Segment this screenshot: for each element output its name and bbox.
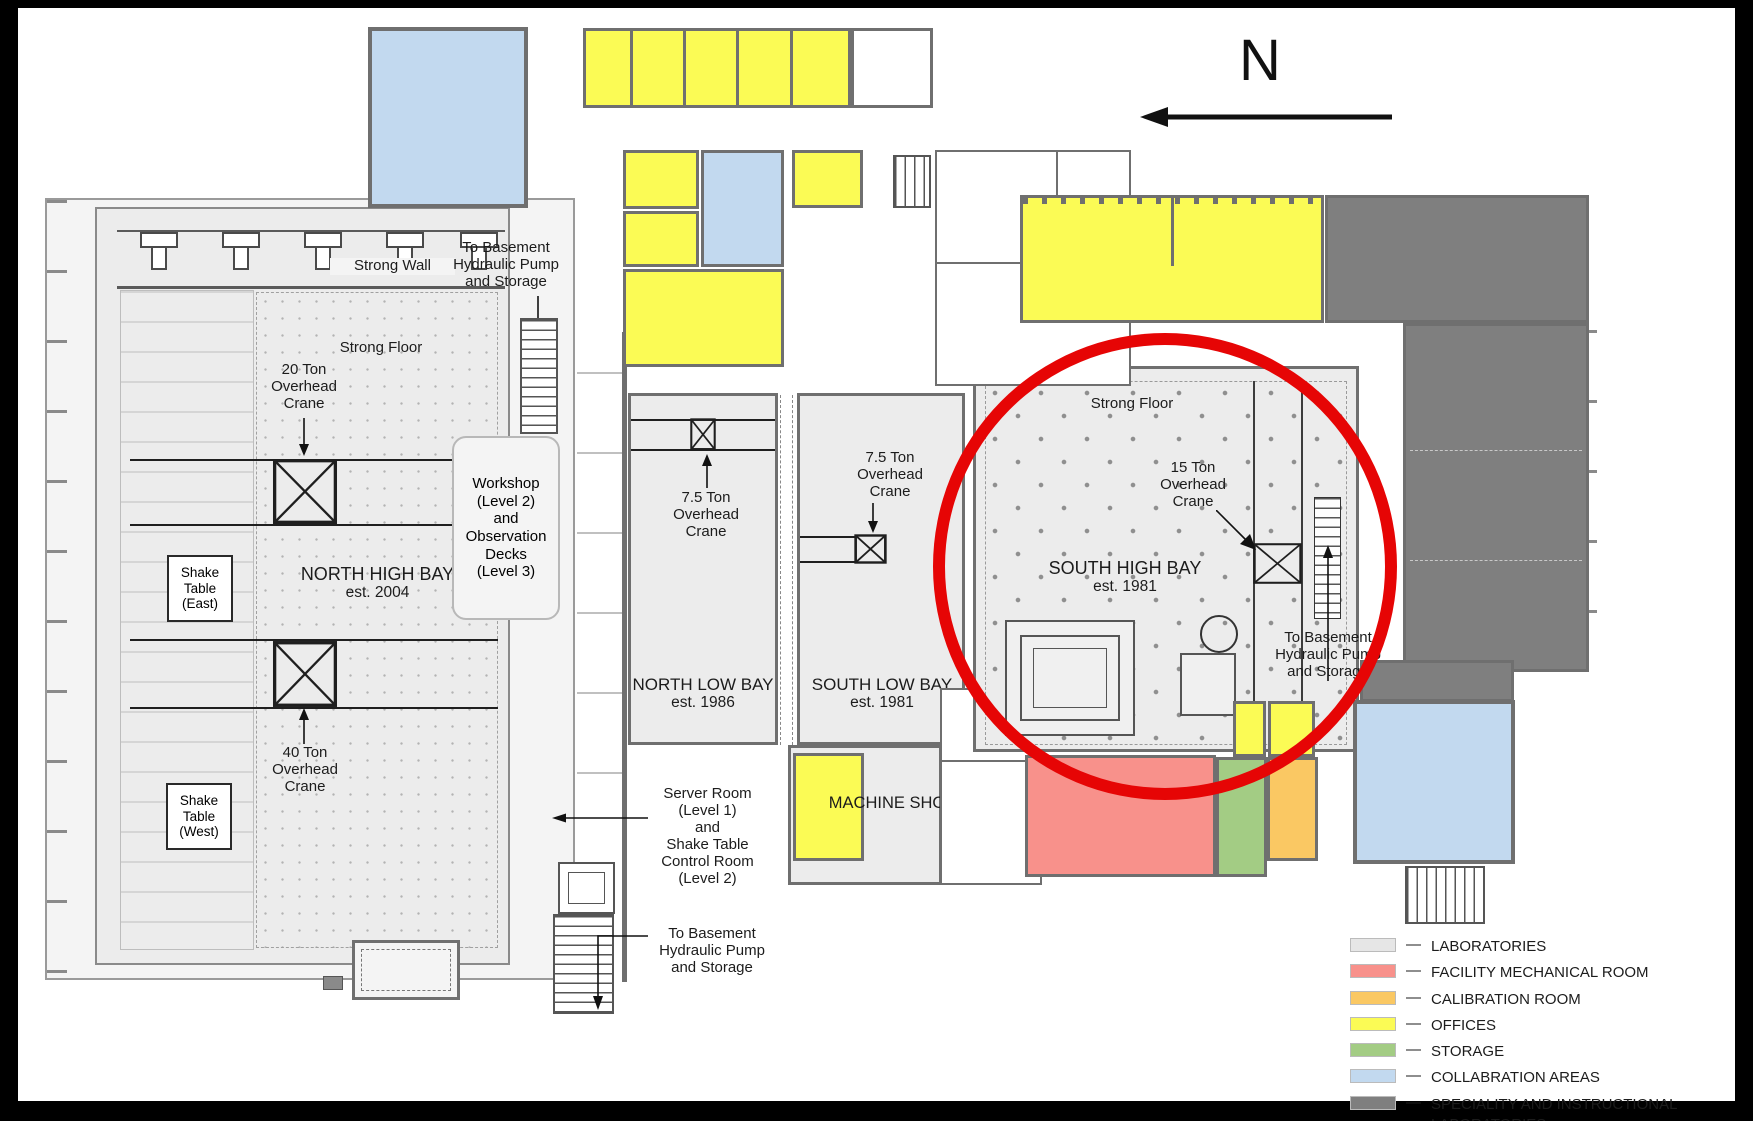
- legend-swatch-specialty: [1350, 1096, 1396, 1110]
- to-basement-south-label: To Basement Hydraulic Pump and Storage: [648, 926, 776, 977]
- corridor-dashed-line: [780, 395, 781, 745]
- elevator: [558, 862, 615, 914]
- legend-label: STORAGE: [1431, 1042, 1504, 1062]
- crane-7-5t-north-icon: [690, 418, 716, 451]
- legend-dash: —: [1406, 1017, 1421, 1031]
- specialty-lab-north: [1325, 195, 1589, 323]
- legend-label: COLLABRATION AREAS: [1431, 1068, 1600, 1088]
- legend-swatch-laboratories: [1350, 938, 1396, 952]
- shake-table-west: Shake Table (West): [166, 783, 232, 850]
- calibration-room: [1267, 757, 1318, 861]
- corridor-divider: [577, 452, 622, 454]
- strong-wall-label: Strong Wall: [330, 258, 455, 275]
- legend-dash: —: [1406, 1096, 1421, 1110]
- collaboration-room-northwest: [368, 27, 528, 208]
- strong-wall-anchor: [304, 232, 342, 248]
- west-column-ticks: [47, 200, 67, 978]
- legend-label: SPECIALITY AND INSTRUCTIONAL LABORATORIE…: [1431, 1095, 1677, 1121]
- crane-7-5t-south-arrow: [866, 503, 880, 533]
- strong-wall-anchor: [222, 232, 260, 248]
- elevator-cab: [568, 872, 605, 904]
- legend-dash: —: [1406, 991, 1421, 1005]
- legend-row: — FACILITY MECHANICAL ROOM: [1350, 964, 1750, 983]
- legend-swatch-collaboration: [1350, 1069, 1396, 1083]
- legend-row: — LABORATORIES: [1350, 938, 1750, 957]
- crane-rail: [800, 561, 858, 563]
- legend: — LABORATORIES — FACILITY MECHANICAL ROO…: [1350, 938, 1750, 1121]
- office-row-wall: [683, 31, 686, 105]
- legend-swatch-storage: [1350, 1043, 1396, 1057]
- shake-table-east: Shake Table (East): [167, 555, 233, 622]
- stairwell-north: [520, 318, 558, 434]
- office-mid-c: [792, 150, 863, 208]
- north-label: N: [1228, 28, 1292, 94]
- corridor-divider: [577, 612, 622, 614]
- office-row-wall: [630, 31, 633, 105]
- specialty-dashed-divider: [1410, 450, 1582, 451]
- server-room-label: Server Room (Level 1) and Shake Table Co…: [645, 786, 770, 888]
- legend-row: — OFFICES: [1350, 1017, 1750, 1036]
- south-low-bay-label: SOUTH LOW BAY est. 1981: [806, 675, 958, 712]
- collaboration-corridor-mid: [701, 150, 784, 267]
- corridor-east-wall: [622, 332, 627, 982]
- legend-swatch-calibration: [1350, 991, 1396, 1005]
- legend-label: LABORATORIES: [1431, 937, 1546, 957]
- north-low-bay-est: est. 1986: [628, 694, 778, 712]
- vestibule-dashed-outline: [361, 949, 451, 991]
- workshop-label: Workshop (Level 2) and Observation Decks…: [466, 475, 547, 581]
- office-mid-large: [623, 269, 784, 367]
- corridor-divider: [577, 372, 622, 374]
- legend-label: OFFICES: [1431, 1016, 1496, 1036]
- south-low-bay-est: est. 1981: [806, 694, 958, 712]
- crane-20t-arrow: [297, 418, 311, 456]
- crane-7-5t-north-arrow: [700, 454, 714, 488]
- office-row-wall: [790, 31, 793, 105]
- legend-row: — COLLABRATION AREAS: [1350, 1069, 1750, 1088]
- server-room-arrow: [552, 811, 648, 825]
- crane-20t-icon: [272, 458, 338, 525]
- crane-40t-label: 40 Ton Overhead Crane: [250, 745, 360, 796]
- to-basement-north-label: To Basement Hydraulic Pump and Storage: [445, 240, 567, 291]
- specialty-lab-south-band: [1360, 660, 1514, 702]
- north-arrow: [1140, 104, 1396, 130]
- office-mid-a: [623, 150, 699, 209]
- corridor-divider: [577, 772, 622, 774]
- legend-label: FACILITY MECHANICAL ROOM: [1431, 963, 1649, 983]
- crane-7-5t-south-label: 7.5 Ton Overhead Crane: [838, 450, 942, 501]
- legend-swatch-facility-mechanical: [1350, 964, 1396, 978]
- north-strong-floor-label: Strong Floor: [316, 340, 446, 357]
- legend-dash: —: [1406, 964, 1421, 978]
- crane-rail: [800, 536, 858, 538]
- specialty-dashed-divider: [1410, 560, 1582, 561]
- legend-label: CALIBRATION ROOM: [1431, 990, 1581, 1010]
- floor-plan-image: Strong Wall Shake Table (East) Shake Tab…: [0, 0, 1753, 1121]
- plan-canvas: Strong Wall Shake Table (East) Shake Tab…: [18, 8, 1735, 1101]
- strong-wall-anchor: [140, 232, 178, 248]
- north-low-bay-name: NORTH LOW BAY: [628, 675, 778, 694]
- legend-dash: —: [1406, 938, 1421, 952]
- stairwell-southeast: [1405, 866, 1485, 924]
- north-low-bay-label: NORTH LOW BAY est. 1986: [628, 675, 778, 712]
- corridor-dashed-line: [792, 395, 793, 745]
- office-row-wall: [736, 31, 739, 105]
- crane-40t-arrow: [297, 708, 311, 744]
- specialty-lab-east: [1403, 323, 1589, 672]
- collaboration-room-southeast: [1353, 700, 1515, 864]
- corridor-divider: [577, 692, 622, 694]
- specialty-window-ticks: [1589, 330, 1597, 665]
- legend-dash: —: [1406, 1043, 1421, 1057]
- workshop-observation-area: Workshop (Level 2) and Observation Decks…: [452, 436, 560, 620]
- office-mid-b: [623, 211, 699, 267]
- shake-table-east-label: Shake Table (East): [181, 565, 219, 612]
- corridor-divider: [577, 532, 622, 534]
- legend-dash: —: [1406, 1069, 1421, 1083]
- crane-40t-icon: [272, 640, 338, 708]
- door-block: [323, 976, 343, 990]
- south-low-bay-name: SOUTH LOW BAY: [806, 675, 958, 694]
- office-ne-wall: [1171, 198, 1174, 266]
- stairwell-mid: [893, 155, 931, 208]
- legend-swatch-offices: [1350, 1017, 1396, 1031]
- crane-7-5t-south-icon: [854, 534, 887, 564]
- to-basement-south-arrow: [590, 930, 650, 1012]
- crane-7-5t-north-label: 7.5 Ton Overhead Crane: [654, 490, 758, 541]
- shake-table-west-label: Shake Table (West): [179, 793, 219, 840]
- legend-row: — CALIBRATION ROOM: [1350, 991, 1750, 1010]
- crane-20t-label: 20 Ton Overhead Crane: [250, 362, 358, 413]
- room-north-white: [851, 28, 933, 108]
- strong-wall-anchor: [386, 232, 424, 248]
- legend-row: — STORAGE: [1350, 1043, 1750, 1062]
- legend-row: — SPECIALITY AND INSTRUCTIONAL LABORATOR…: [1350, 1096, 1750, 1121]
- highlight-circle: [933, 333, 1397, 800]
- office-row-north: [583, 28, 851, 108]
- south-vestibule: [352, 940, 460, 1000]
